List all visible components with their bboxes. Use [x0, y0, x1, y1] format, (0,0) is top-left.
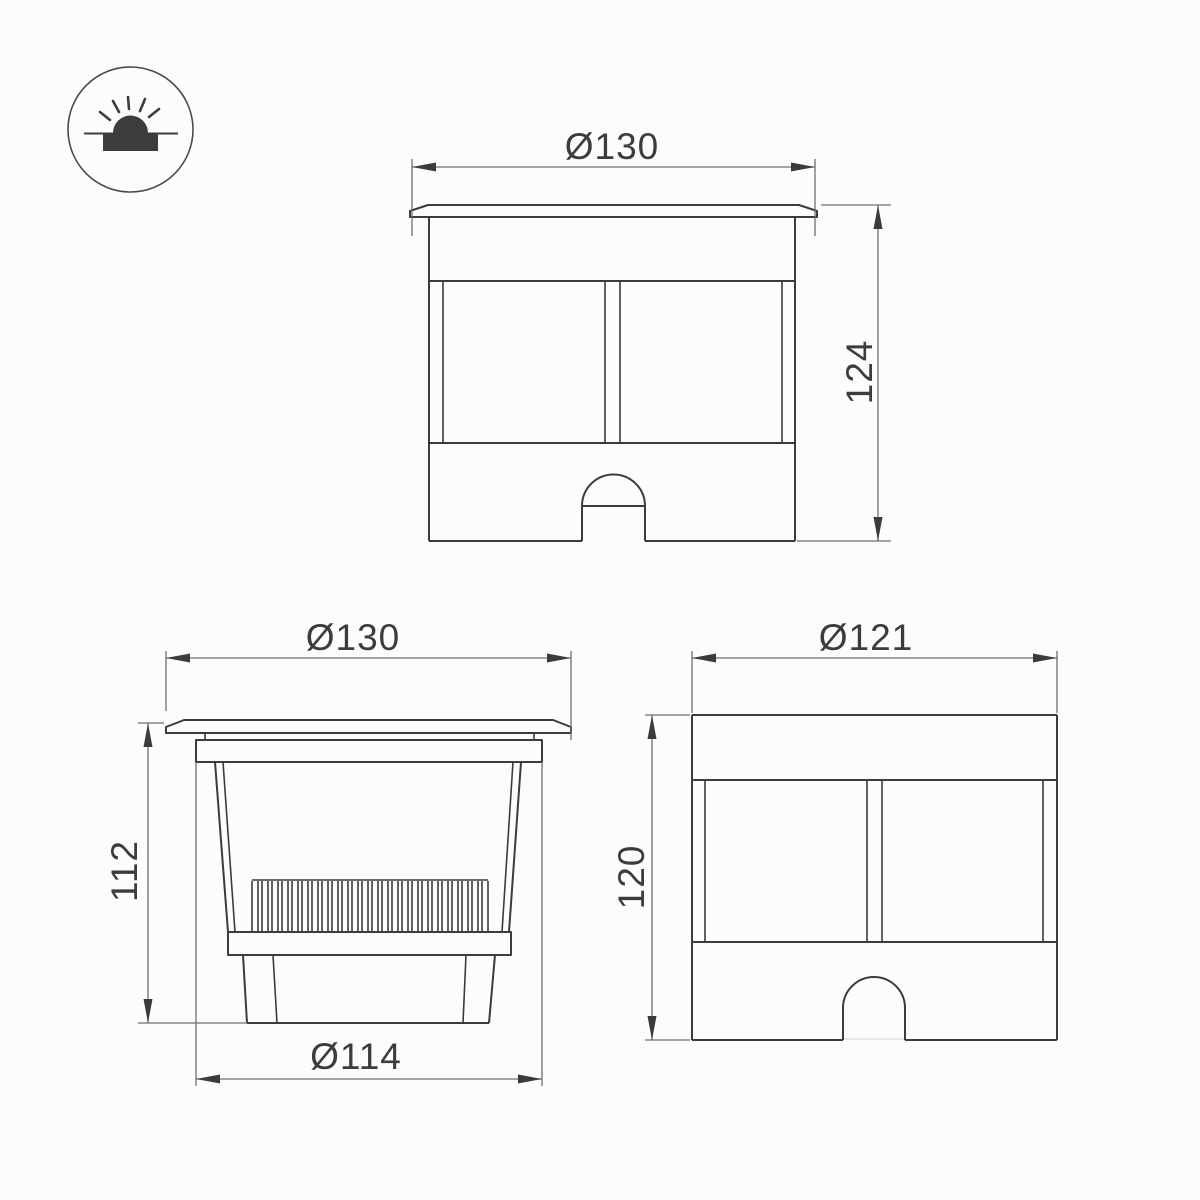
section-width-label: Ø130: [306, 617, 401, 658]
section-height-dimension: 112: [104, 723, 247, 1023]
section-mounting-plate: [228, 932, 511, 955]
front-height-dimension: 124: [797, 205, 891, 541]
section-neck: [205, 733, 534, 740]
front-body-outline: [429, 217, 795, 541]
front-width-dimension: Ø130: [412, 126, 815, 236]
section-body-label: Ø114: [310, 1036, 402, 1077]
icon-recessed-body: [103, 133, 158, 151]
section-height-label: 112: [104, 840, 145, 902]
inground-light-icon: [68, 67, 193, 192]
section-flange: [166, 720, 571, 733]
heatsink-fins: [252, 881, 488, 931]
housing-body-outline: [692, 715, 1057, 1040]
front-lens-windows: [443, 281, 782, 443]
front-width-label: Ø130: [565, 126, 660, 167]
section-view-drawing: [166, 720, 571, 1023]
housing-height-label: 120: [611, 845, 652, 910]
housing-view-drawing: [692, 715, 1057, 1040]
housing-width-dimension: Ø121: [692, 617, 1057, 713]
housing-width-dim-lines: [692, 651, 1057, 713]
front-cable-arch: [582, 475, 645, 541]
section-width-dimension: Ø130: [166, 617, 571, 740]
housing-lens-windows: [705, 780, 1043, 942]
section-collar: [196, 740, 542, 762]
section-width-dim-lines: [166, 651, 571, 740]
housing-height-dimension: 120: [611, 715, 690, 1040]
housing-cable-arch: [843, 977, 905, 1040]
front-height-label: 124: [839, 340, 880, 405]
front-view-drawing: [410, 205, 817, 541]
housing-width-label: Ø121: [819, 617, 914, 658]
front-flange: [410, 205, 817, 217]
section-body-dimension: Ø114: [196, 762, 542, 1086]
section-housing-tabs: [273, 955, 466, 1023]
front-width-dim-lines: [412, 159, 815, 236]
section-bottom-housing: [243, 955, 495, 1023]
technical-drawing-canvas: Ø130 124 Ø130 112: [0, 0, 1200, 1200]
icon-lamp-dome: [113, 116, 148, 134]
